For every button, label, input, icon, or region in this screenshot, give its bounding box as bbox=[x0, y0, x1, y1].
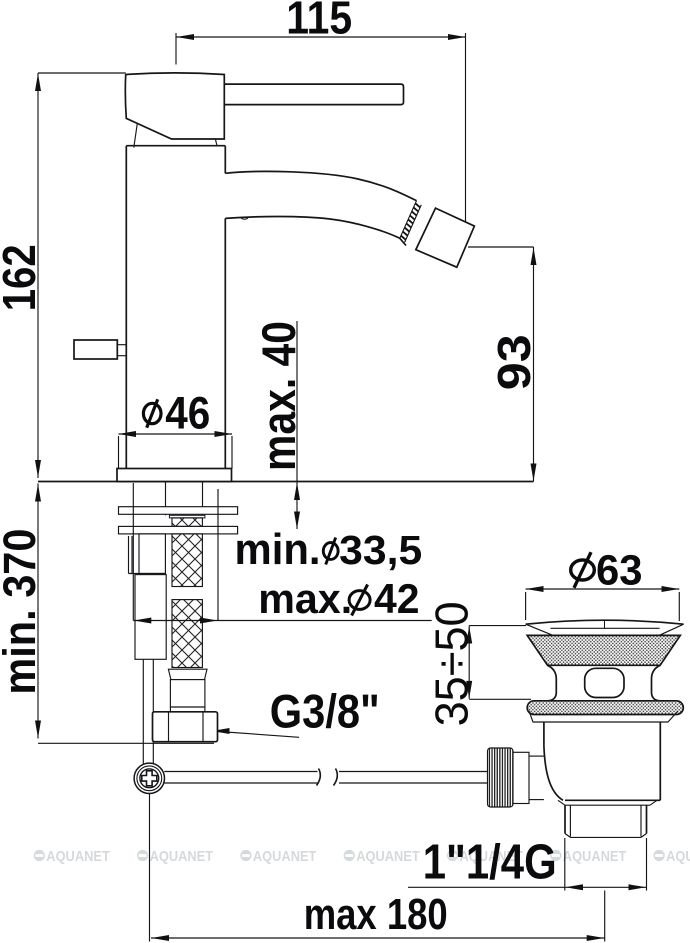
svg-text:min.: min. bbox=[235, 525, 321, 574]
svg-text:115: 115 bbox=[286, 0, 352, 44]
svg-text:AQUANET: AQUANET bbox=[356, 848, 420, 865]
svg-text:46: 46 bbox=[165, 388, 210, 439]
svg-text:max 180: max 180 bbox=[304, 890, 448, 939]
svg-text:AQUANET: AQUANET bbox=[253, 848, 317, 865]
svg-text:AQUANET: AQUANET bbox=[563, 848, 627, 865]
svg-text:G3/8": G3/8" bbox=[270, 685, 380, 738]
svg-text:1"1/4G: 1"1/4G bbox=[423, 836, 557, 890]
svg-text:AQUANET: AQUANET bbox=[46, 848, 110, 865]
svg-text:42: 42 bbox=[374, 575, 420, 622]
svg-text:33,5: 33,5 bbox=[339, 527, 422, 573]
svg-text:162: 162 bbox=[0, 244, 45, 311]
svg-text:max.: max. bbox=[258, 575, 352, 622]
svg-text:93: 93 bbox=[488, 334, 540, 390]
svg-text:63: 63 bbox=[596, 547, 643, 595]
svg-text:AQUANET: AQUANET bbox=[150, 848, 214, 865]
svg-text:AQUANET: AQUANET bbox=[666, 848, 690, 865]
svg-text:35÷50: 35÷50 bbox=[426, 601, 478, 726]
svg-text:min. 370: min. 370 bbox=[0, 529, 45, 695]
svg-text:max. 40: max. 40 bbox=[252, 321, 305, 471]
